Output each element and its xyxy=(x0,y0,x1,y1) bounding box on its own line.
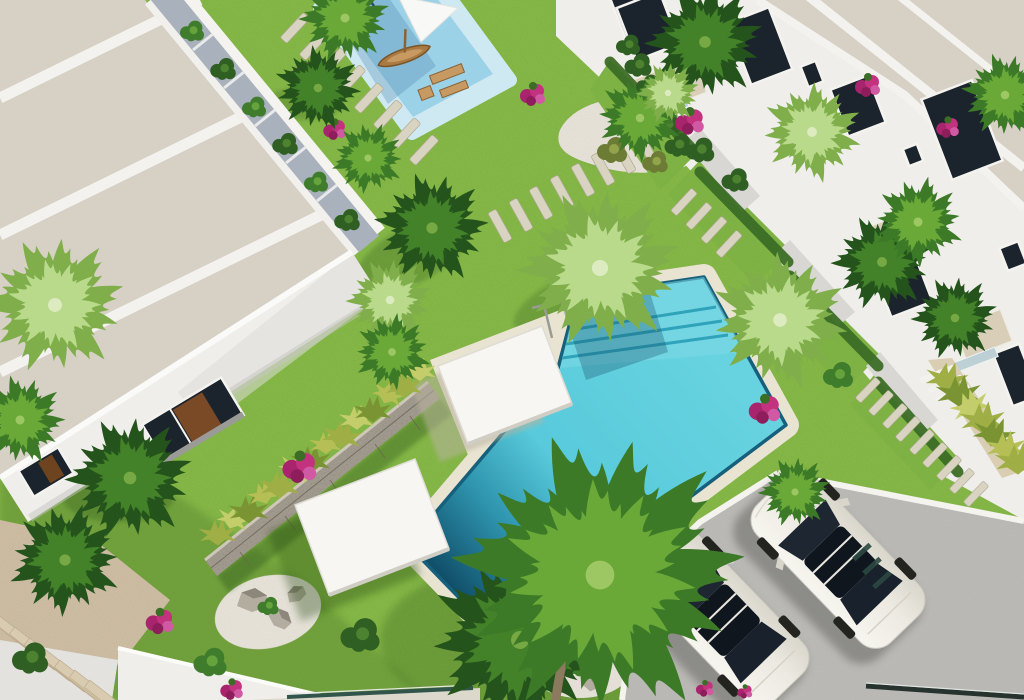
aerial-render xyxy=(0,0,1024,700)
